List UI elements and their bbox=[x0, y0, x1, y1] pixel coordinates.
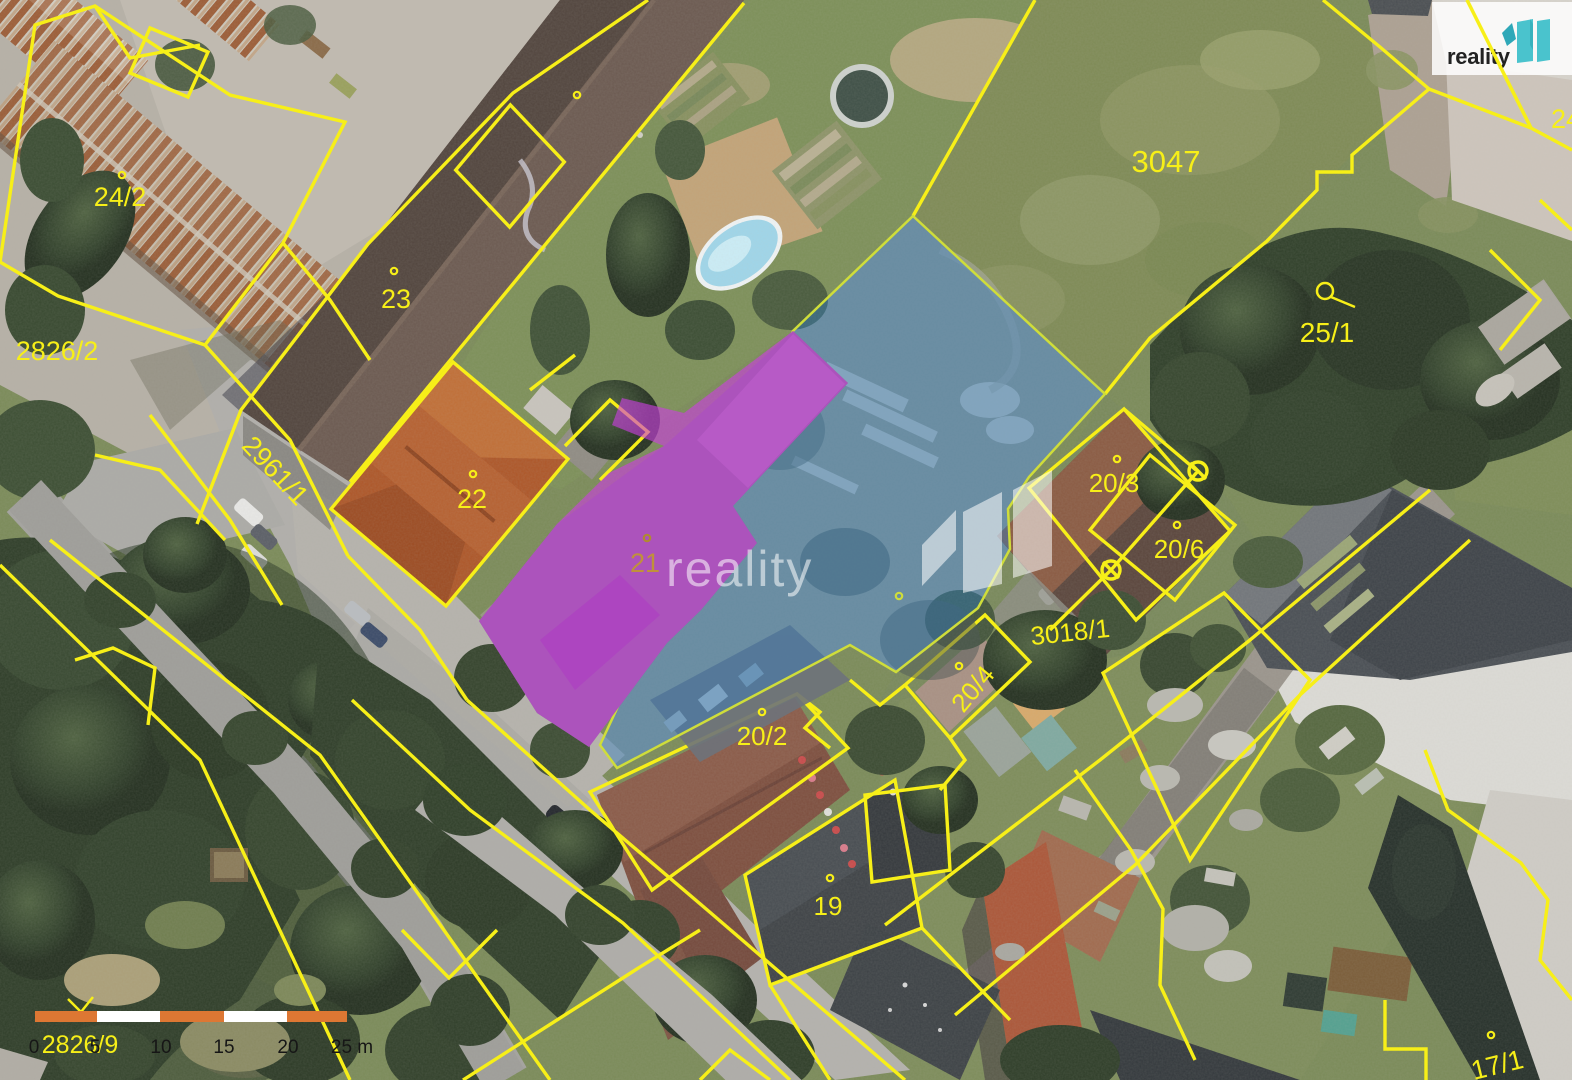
svg-text:2826/2: 2826/2 bbox=[16, 336, 99, 366]
svg-text:5: 5 bbox=[90, 1037, 101, 1058]
svg-text:24: 24 bbox=[1551, 104, 1572, 134]
svg-text:24/2: 24/2 bbox=[94, 182, 147, 212]
svg-text:10: 10 bbox=[150, 1037, 171, 1058]
svg-text:20: 20 bbox=[277, 1037, 298, 1058]
svg-text:reality: reality bbox=[666, 541, 813, 597]
svg-text:25 m: 25 m bbox=[331, 1037, 373, 1058]
svg-text:15: 15 bbox=[213, 1037, 234, 1058]
svg-text:22: 22 bbox=[457, 484, 487, 514]
svg-text:0: 0 bbox=[29, 1037, 40, 1058]
svg-text:20/2: 20/2 bbox=[737, 721, 788, 751]
svg-text:20/6: 20/6 bbox=[1154, 534, 1205, 564]
svg-text:2826/9: 2826/9 bbox=[42, 1031, 118, 1059]
svg-text:20/3: 20/3 bbox=[1089, 468, 1140, 498]
svg-text:3047: 3047 bbox=[1132, 144, 1201, 179]
svg-text:19: 19 bbox=[814, 891, 843, 921]
svg-text:23: 23 bbox=[381, 284, 411, 314]
svg-text:21: 21 bbox=[630, 548, 660, 578]
svg-text:25/1: 25/1 bbox=[1300, 317, 1355, 348]
